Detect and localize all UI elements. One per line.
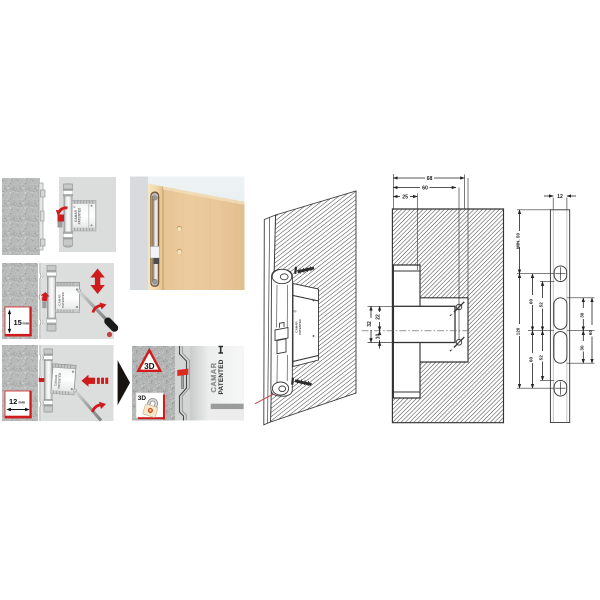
svg-text:12: 12 (9, 397, 17, 406)
svg-text:30: 30 (579, 312, 584, 318)
svg-text:68: 68 (427, 176, 433, 182)
svg-text:60: 60 (422, 186, 428, 192)
svg-text:15: 15 (14, 318, 22, 327)
svg-text:PATENTED: PATENTED (298, 318, 302, 335)
svg-text:22: 22 (376, 314, 382, 320)
svg-text:PATENTED: PATENTED (61, 291, 65, 308)
svg-text:CAMAR: CAMAR (209, 362, 218, 392)
svg-text:MIN. 50: MIN. 50 (516, 233, 521, 250)
svg-text:10: 10 (376, 334, 382, 340)
svg-text:25: 25 (402, 195, 408, 201)
svg-text:PATENTED: PATENTED (218, 359, 225, 394)
svg-text:PATENTED: PATENTED (78, 207, 82, 224)
svg-text:3D: 3D (144, 362, 155, 371)
svg-text:mm: mm (23, 322, 29, 326)
svg-text:52: 52 (539, 302, 544, 308)
svg-text:30: 30 (579, 345, 584, 351)
svg-text:52: 52 (539, 355, 544, 361)
svg-text:32: 32 (367, 321, 373, 327)
svg-text:60: 60 (588, 330, 593, 336)
svg-text:60: 60 (529, 357, 534, 363)
svg-text:60: 60 (529, 299, 534, 305)
svg-text:120: 120 (516, 327, 521, 335)
svg-text:3D: 3D (138, 395, 147, 402)
svg-text:mm: mm (19, 401, 25, 405)
svg-text:12: 12 (557, 194, 563, 200)
